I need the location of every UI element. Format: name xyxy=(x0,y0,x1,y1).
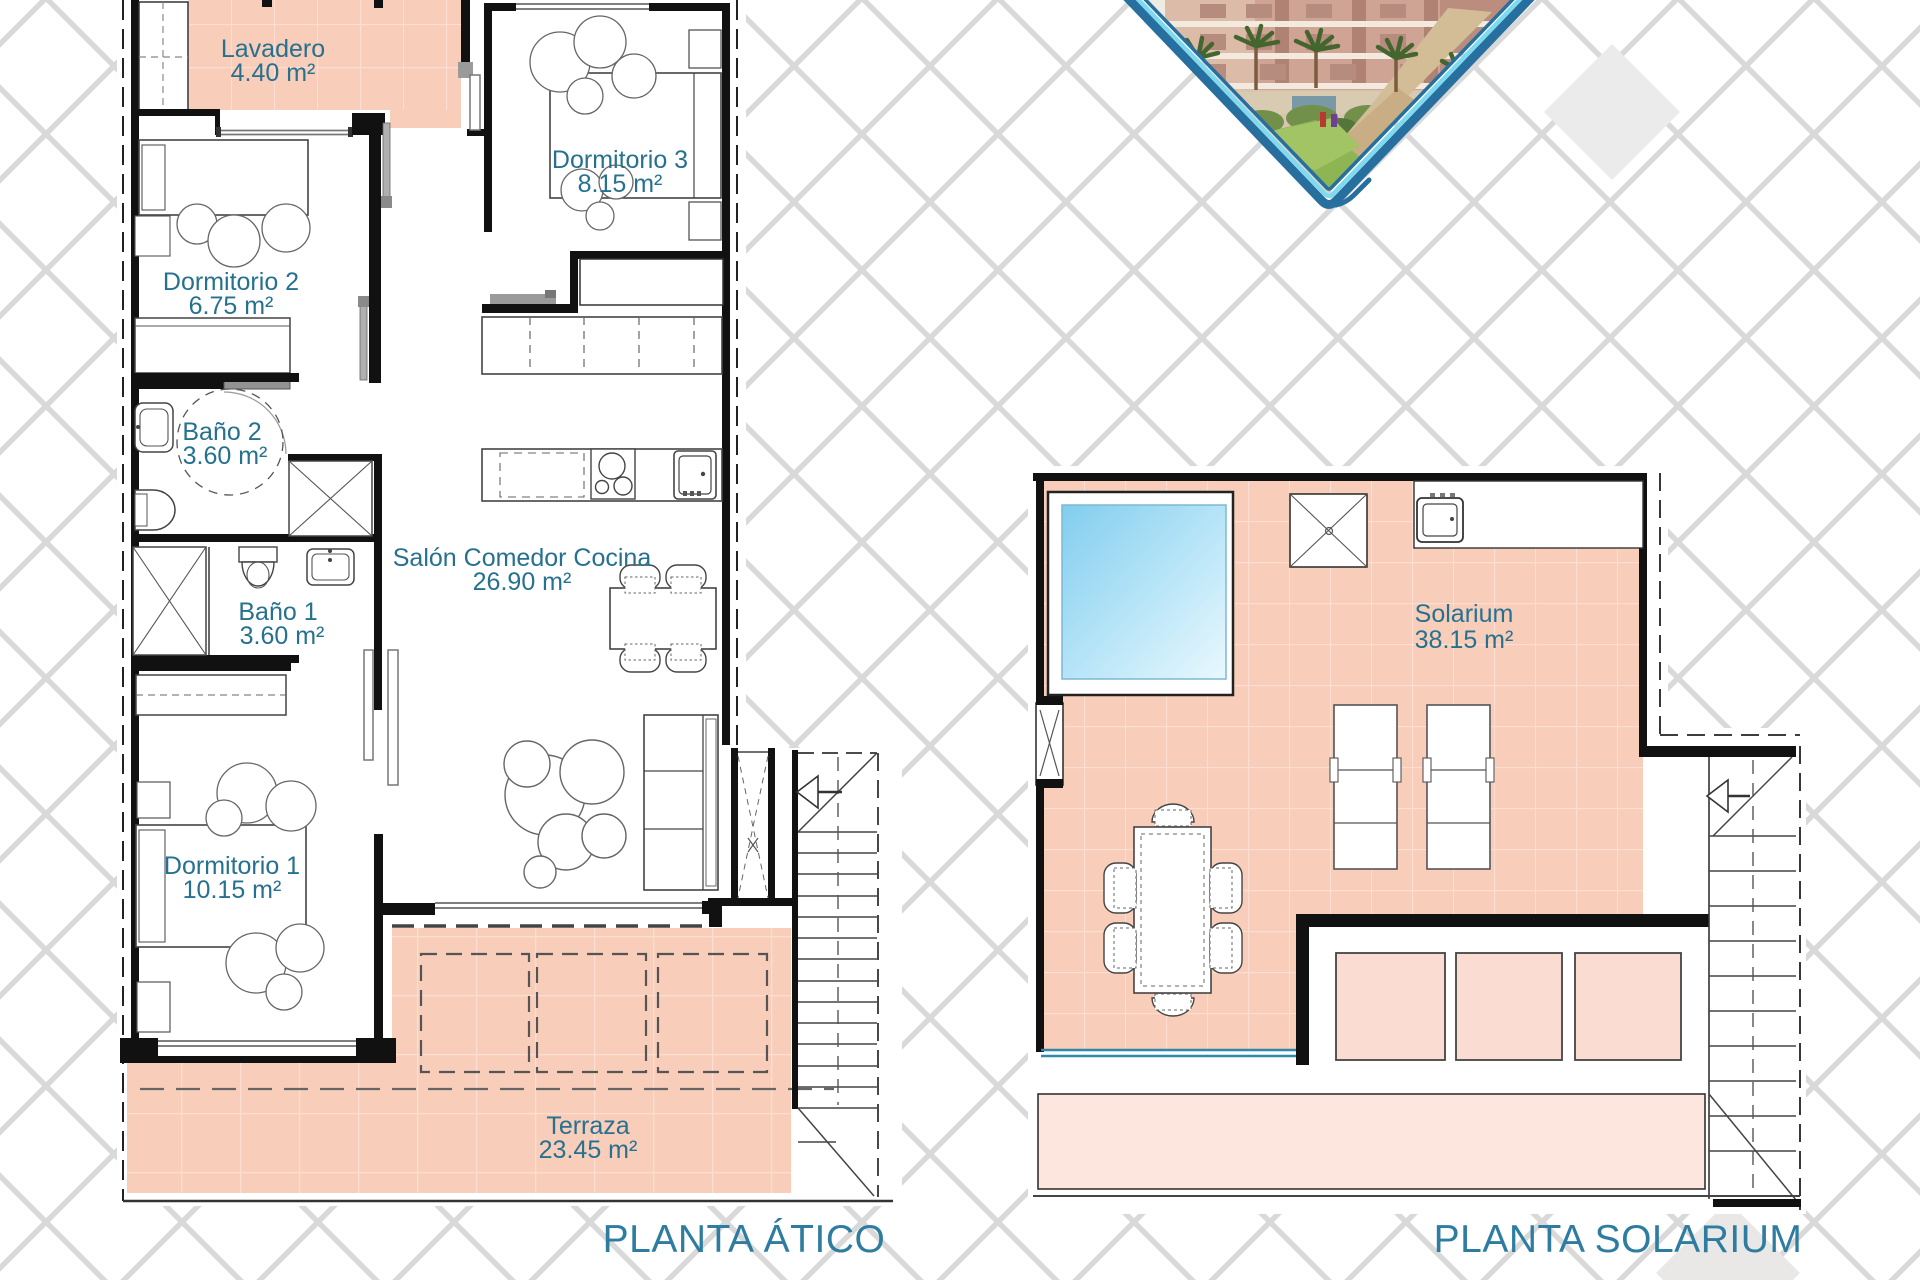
svg-text:26.90 m²: 26.90 m² xyxy=(473,568,572,596)
svg-text:6.75 m²: 6.75 m² xyxy=(189,292,274,320)
svg-text:Solarium: Solarium xyxy=(1415,600,1514,628)
svg-text:4.40 m²: 4.40 m² xyxy=(231,59,316,87)
svg-text:8.15 m²: 8.15 m² xyxy=(578,170,663,198)
svg-text:38.15 m²: 38.15 m² xyxy=(1415,626,1514,654)
svg-text:10.15 m²: 10.15 m² xyxy=(183,876,282,904)
svg-text:PLANTA ÁTICO: PLANTA ÁTICO xyxy=(603,1218,886,1261)
svg-text:23.45 m²: 23.45 m² xyxy=(539,1136,638,1164)
svg-text:3.60 m²: 3.60 m² xyxy=(240,622,325,650)
svg-text:3.60 m²: 3.60 m² xyxy=(183,442,268,470)
svg-text:PLANTA SOLARIUM: PLANTA SOLARIUM xyxy=(1434,1218,1803,1261)
